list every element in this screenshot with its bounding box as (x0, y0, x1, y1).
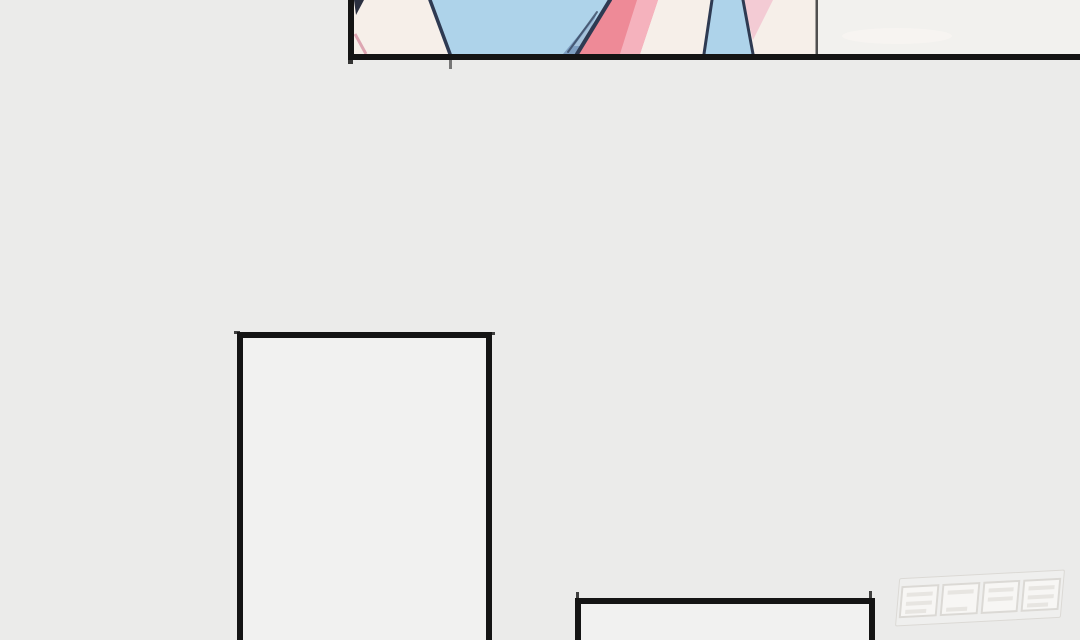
comic-panel-artwork (348, 0, 1080, 60)
watermark-glyph (899, 584, 940, 618)
watermark-glyph-stroke (987, 596, 1013, 601)
comic-panel-empty-left (237, 332, 492, 640)
art-offwhite-area (818, 0, 1080, 54)
art-thin-vertical-line (816, 0, 819, 54)
panel-corner-overshoot (234, 331, 240, 334)
watermark-glyph-stroke (946, 607, 967, 612)
watermark-glyph-stroke (947, 589, 973, 594)
art-faint-smudge (842, 28, 952, 44)
panel-corner-overshoot (490, 332, 495, 335)
watermark-glyph-stroke (1027, 602, 1048, 607)
comic-page (0, 0, 1080, 640)
watermark-glyph-stroke (905, 609, 926, 614)
watermark-glyph (939, 582, 980, 616)
watermark-logo (895, 570, 1065, 627)
sketch-tick-top-panel-corner (348, 60, 353, 64)
watermark-glyph-stroke (1028, 594, 1054, 599)
comic-panel-empty-bottom (575, 598, 875, 640)
panel-artwork-canvas (354, 0, 1080, 54)
watermark-glyph-stroke (1029, 585, 1055, 590)
panel-corner-overshoot (576, 592, 579, 599)
sketch-tick-below-top-panel (449, 60, 452, 69)
watermark-glyph (1021, 578, 1062, 612)
panel-corner-overshoot (869, 591, 872, 599)
watermark-glyph-stroke (988, 587, 1014, 592)
watermark-glyph-stroke (906, 601, 932, 606)
watermark-glyph (980, 580, 1021, 614)
watermark-glyph-stroke (907, 591, 933, 596)
